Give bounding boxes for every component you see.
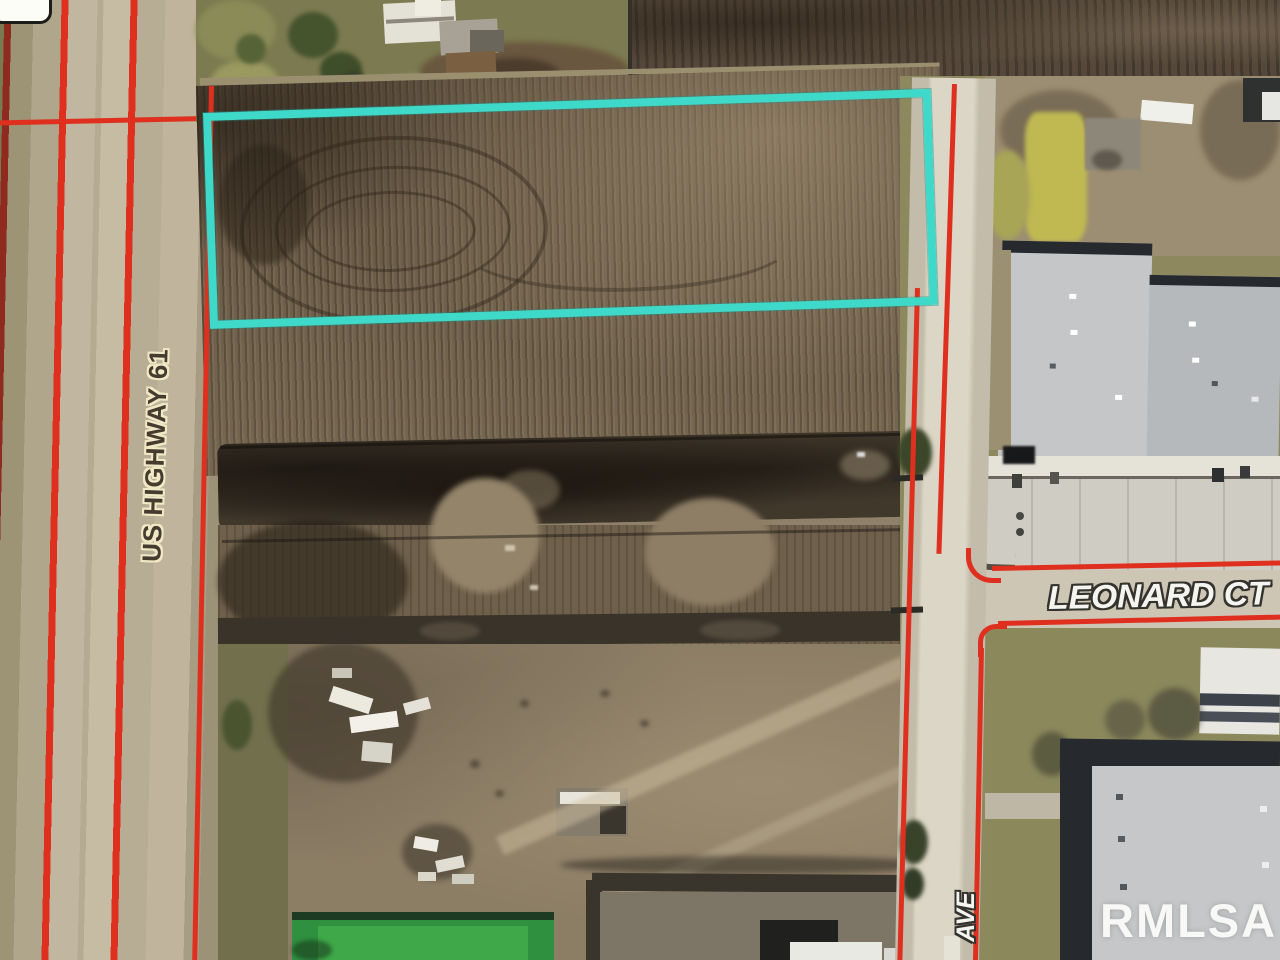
construction-debris bbox=[418, 872, 436, 881]
terrain-detail bbox=[700, 620, 780, 640]
roof-vent bbox=[1070, 330, 1077, 335]
parked-car bbox=[1012, 474, 1022, 488]
terrain-detail bbox=[1105, 700, 1145, 740]
roof-vent bbox=[1262, 862, 1269, 868]
terrain-detail bbox=[420, 622, 480, 640]
parking-dot bbox=[1016, 512, 1024, 520]
tree-cluster bbox=[902, 868, 924, 900]
industrial-building-west bbox=[998, 240, 1153, 471]
terrain-detail bbox=[530, 585, 538, 590]
sports-field-inner bbox=[318, 926, 528, 960]
white-building-south bbox=[1199, 647, 1280, 734]
leonard-ct-label: LEONARD CT bbox=[1048, 573, 1280, 618]
dark-debris-row bbox=[560, 856, 940, 874]
construction-debris bbox=[452, 874, 474, 884]
building-stripe bbox=[1199, 711, 1279, 722]
construction-debris bbox=[332, 668, 352, 678]
building-stripe bbox=[1200, 693, 1280, 706]
construction-debris bbox=[361, 741, 393, 764]
mls-watermark: RMLSA bbox=[1100, 893, 1277, 948]
parking-dot bbox=[1016, 528, 1024, 536]
terrain-detail bbox=[600, 690, 610, 697]
terrain-detail bbox=[840, 450, 890, 480]
roof-vent bbox=[1115, 395, 1122, 400]
roof-vent bbox=[1050, 363, 1056, 368]
graded-pad-edge bbox=[592, 873, 942, 893]
terrain-detail bbox=[505, 545, 515, 551]
terrain-detail bbox=[1148, 688, 1202, 740]
highlighted-parcel-outline bbox=[203, 89, 938, 329]
roof-vent bbox=[1192, 358, 1199, 363]
tree-cluster bbox=[222, 700, 252, 750]
lot-line-dark-vertical bbox=[628, 0, 632, 78]
terrain-detail bbox=[292, 940, 332, 960]
farm-building-small bbox=[415, 0, 441, 16]
white-panel bbox=[1262, 92, 1280, 120]
neighbor-plowed-field bbox=[628, 0, 1280, 76]
tree-cluster bbox=[288, 12, 338, 58]
big-building-shadow bbox=[1060, 744, 1096, 960]
terrain-detail bbox=[495, 790, 504, 797]
terrain-detail bbox=[470, 760, 480, 768]
grass-patch-yellow bbox=[1025, 112, 1087, 242]
tree-cluster bbox=[236, 34, 266, 64]
roof-vent bbox=[1189, 322, 1196, 327]
roof-vent bbox=[1260, 806, 1267, 812]
map-control-box bbox=[0, 0, 52, 24]
terrain-detail bbox=[640, 720, 649, 727]
roof-vent bbox=[1120, 884, 1127, 890]
terrain-detail bbox=[857, 452, 865, 457]
parked-car bbox=[1212, 468, 1224, 482]
roof-vent bbox=[1118, 836, 1125, 842]
terrain-detail bbox=[520, 700, 529, 707]
roof-vent bbox=[1116, 794, 1123, 800]
tree-cluster bbox=[1003, 446, 1035, 464]
roof-vent bbox=[1212, 381, 1218, 386]
light-soil-patch bbox=[645, 498, 775, 606]
parked-car bbox=[1240, 466, 1250, 478]
terrain-detail bbox=[1092, 150, 1122, 170]
farm-building-shadow-side bbox=[470, 30, 504, 52]
parked-car bbox=[1050, 472, 1059, 484]
roof-vent bbox=[1069, 294, 1076, 299]
avenue-label: AVE bbox=[951, 877, 981, 957]
parking-lot bbox=[985, 479, 1280, 572]
roof-vent bbox=[1251, 397, 1258, 402]
aerial-parcel-map: US HIGHWAY 61 LEONARD CT AVE RMLSA bbox=[0, 0, 1280, 960]
industrial-building-east bbox=[1146, 275, 1280, 469]
concrete-slab bbox=[790, 942, 882, 960]
sports-field-edge bbox=[292, 912, 554, 920]
